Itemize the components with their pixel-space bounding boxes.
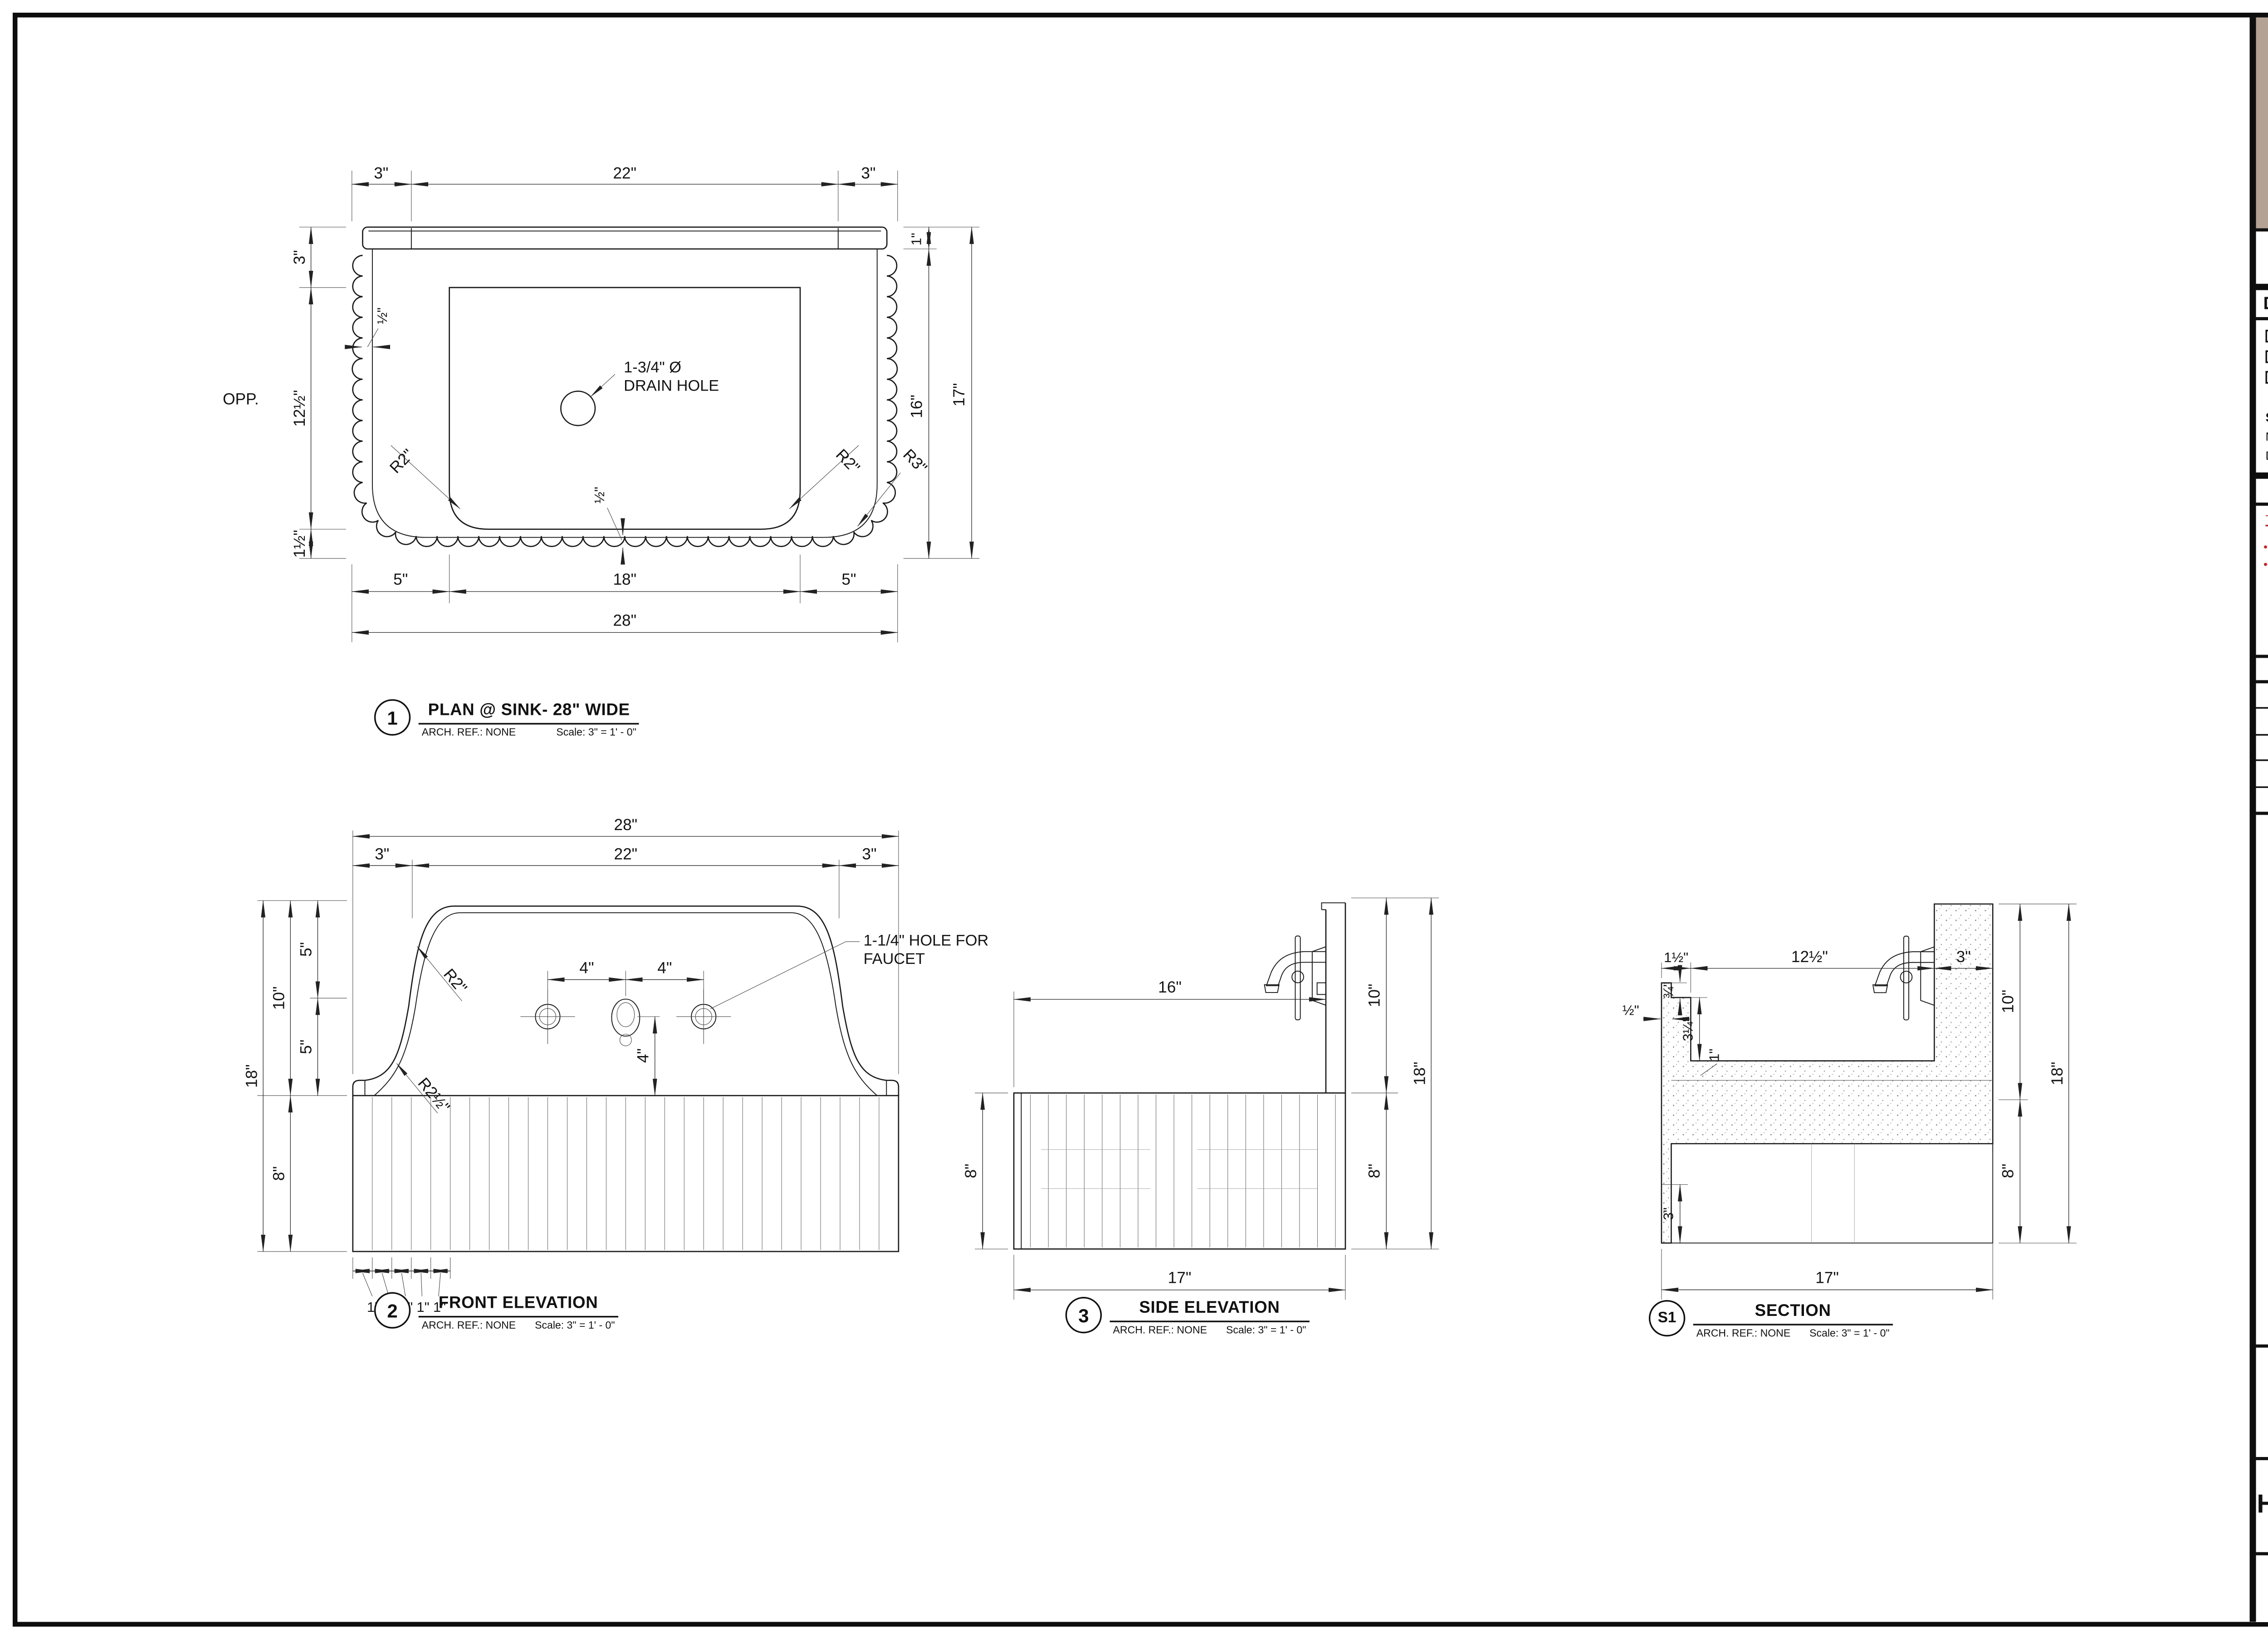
status-option: FOR PRODUCTION <box>2265 369 2268 383</box>
svg-text:DRAIN HOLE: DRAIN HOLE <box>624 377 719 395</box>
svg-text:3": 3" <box>291 250 308 264</box>
svg-text:FAUCET: FAUCET <box>864 950 925 968</box>
svg-text:10": 10" <box>1999 990 2017 1013</box>
svg-text:5": 5" <box>841 571 856 588</box>
front-elevation-view: 28" 3" 22" 3" 4" 4" 4" 1-1/4" HOLE FOR F… <box>231 815 1026 1359</box>
svg-text:22": 22" <box>614 845 638 863</box>
status-option: IN PROGRESS <box>2265 328 2268 342</box>
svg-text:1": 1" <box>908 233 924 245</box>
faucet <box>1265 936 1326 1020</box>
svg-text:4": 4" <box>657 959 672 977</box>
revisions-header: REVISIONS <box>2256 655 2268 683</box>
revisions-table: 1 2 3 4 5 <box>2256 683 2268 815</box>
drawing-status-options: IN PROGRESS APPROVED FOR PRODUCTION <box>2256 320 2268 407</box>
room-name-value: -- <box>2256 1378 2268 1403</box>
arch-ref: ARCH. REF.: NONE <box>422 1320 516 1331</box>
tolerance-notes-title: TOLERANCE NOTES: <box>2265 512 2268 526</box>
section-view: 1½" 12½" 3" ½" ¾" 3¼" 1" 3" <box>1593 886 2129 1353</box>
svg-text:17": 17" <box>950 383 968 406</box>
arch-ref: ARCH. REF.: NONE <box>422 727 516 738</box>
room-name-label: ROOM NAME <box>2256 1357 2268 1371</box>
signed-by-section: SIGNED BY: NAME : Date: <box>2256 407 2268 479</box>
studio-header: STUDIO LAKIR DRAFTING SERVICES <box>2256 231 2268 290</box>
revision-row: 5 <box>2256 787 2268 815</box>
drain-note: 1-3/4" Ø <box>624 359 681 376</box>
name-label: NAME : <box>2265 430 2268 444</box>
callout-front: 2 FRONT ELEVATION ARCH. REF.: NONE Scale… <box>374 1292 618 1331</box>
signed-by-label: SIGNED BY: <box>2265 411 2268 425</box>
callout-number: 2 <box>374 1292 411 1329</box>
svg-text:8": 8" <box>1999 1164 2017 1178</box>
plan-geometry: 1-3/4" Ø DRAIN HOLE <box>352 227 897 547</box>
logo: Cultheir <box>2256 17 2268 231</box>
view-title: SECTION <box>1693 1301 1893 1325</box>
svg-text:½": ½" <box>591 487 607 504</box>
callout-number: S1 <box>1649 1300 1685 1336</box>
plan-view: 1-3/4" Ø DRAIN HOLE 3" 22" 3" 1" 16" 17" <box>225 157 1015 675</box>
callout-number: 3 <box>1066 1297 1102 1333</box>
side-dimensions: 16" 10" 8" 18" 8" 17" <box>962 898 1439 1300</box>
svg-text:3": 3" <box>375 845 389 863</box>
view-scale: Scale: 3" = 1' - 0" <box>1809 1328 1889 1339</box>
svg-text:R3": R3" <box>899 446 930 477</box>
svg-text:10": 10" <box>1366 984 1383 1007</box>
svg-text:28": 28" <box>613 611 636 629</box>
checkbox-approved[interactable] <box>2265 350 2268 362</box>
svg-text:3": 3" <box>861 164 875 182</box>
front-dimensions: 28" 3" 22" 3" 4" 4" 4" 1-1/4" HOLE FOR F… <box>243 816 988 1315</box>
svg-text:18": 18" <box>243 1064 260 1088</box>
svg-text:3¼": 3¼" <box>1680 1017 1696 1041</box>
plan-dimensions: 3" 22" 3" 1" 16" 17" 3" 12½" 1½" OPP. <box>223 164 979 642</box>
svg-text:R2": R2" <box>386 446 417 477</box>
faucet <box>1873 936 1934 1020</box>
revision-row: 2 <box>2256 709 2268 735</box>
svg-text:18": 18" <box>1411 1062 1428 1085</box>
drawing-status-header: DRAWING STATUS <box>2256 290 2268 320</box>
svg-text:1": 1" <box>1706 1049 1722 1061</box>
drain-hole <box>561 391 595 425</box>
side-elevation-view: 16" 10" 8" 18" 8" 17" <box>951 886 1492 1353</box>
sheet-no-value: 1.1 <box>2256 1582 2268 1617</box>
svg-text:½": ½" <box>374 308 390 324</box>
callout-plan: 1 PLAN @ SINK- 28" WIDE ARCH. REF.: NONE… <box>374 699 640 738</box>
view-scale: Scale: 3" = 1' - 0" <box>556 727 636 738</box>
project-info: PROJECT NAME: DATE: 10.13.25 PROJECT NO.… <box>2256 815 2268 1347</box>
drawing-title-section: DRAWING TITLE HULUSI SINK <box>2256 1460 2268 1555</box>
svg-text:17": 17" <box>1168 1269 1192 1287</box>
room-name-section: ROOM NAME -- <box>2256 1348 2268 1460</box>
studio-subtitle: DRAFTING SERVICES <box>2256 259 2268 269</box>
view-title: SIDE ELEVATION <box>1110 1298 1310 1322</box>
svg-text:1½": 1½" <box>1664 949 1688 965</box>
view-title: PLAN @ SINK- 28" WIDE <box>419 701 640 724</box>
sheet-no-label: SHEET NO. <box>2256 1563 2268 1579</box>
svg-text:8": 8" <box>1366 1164 1383 1178</box>
svg-text:4": 4" <box>579 959 594 977</box>
revision-row: 1 <box>2256 683 2268 709</box>
view-title: FRONT ELEVATION <box>419 1294 618 1317</box>
callout-side: 3 SIDE ELEVATION ARCH. REF.: NONE Scale:… <box>1066 1297 1310 1336</box>
sheet-no-section: SHEET NO. 1.1 <box>2256 1555 2268 1622</box>
svg-text:17": 17" <box>1815 1269 1839 1286</box>
arch-ref: ARCH. REF.: NONE <box>1696 1328 1790 1339</box>
svg-text:R2": R2" <box>440 965 470 997</box>
svg-text:8": 8" <box>270 1166 288 1181</box>
faucet-hole-center <box>611 999 640 1046</box>
svg-text:12½": 12½" <box>291 390 308 427</box>
status-option: APPROVED <box>2265 349 2268 363</box>
checkbox-for-production[interactable] <box>2265 370 2268 383</box>
callout-number: 1 <box>374 699 411 735</box>
notes-section: NOTES TOLERANCE NOTES: MILLWORK: -- STON… <box>2256 479 2268 655</box>
checkbox-in-progress[interactable] <box>2265 329 2268 342</box>
svg-text:8": 8" <box>962 1164 980 1178</box>
view-scale: Scale: 3" = 1' - 0" <box>1226 1325 1306 1335</box>
drawing-title-label: DRAWING TITLE <box>2256 1470 2268 1486</box>
svg-text:28": 28" <box>614 816 638 834</box>
svg-text:¾": ¾" <box>1661 982 1677 998</box>
view-scale: Scale: 3" = 1' - 0" <box>535 1320 615 1331</box>
opp-label: OPP. <box>223 391 259 408</box>
arch-ref: ARCH. REF.: NONE <box>1113 1325 1207 1335</box>
front-geometry <box>353 906 899 1252</box>
svg-text:5": 5" <box>298 1040 315 1054</box>
svg-text:22": 22" <box>613 164 636 182</box>
date-label: Date: <box>2265 449 2268 463</box>
svg-text:12½": 12½" <box>1791 948 1828 966</box>
svg-text:10": 10" <box>270 987 288 1010</box>
svg-text:1½": 1½" <box>291 530 308 557</box>
callout-section: S1 SECTION ARCH. REF.: NONE Scale: 3" = … <box>1649 1300 1893 1339</box>
svg-text:16": 16" <box>1158 978 1182 996</box>
svg-text:R2": R2" <box>832 446 863 477</box>
drawing-title-value: HULUSI SINK <box>2256 1490 2268 1520</box>
svg-text:16": 16" <box>908 395 926 418</box>
svg-text:3": 3" <box>374 164 388 182</box>
svg-text:3": 3" <box>1956 948 1971 966</box>
svg-text:5": 5" <box>298 942 315 957</box>
svg-text:3": 3" <box>1661 1208 1677 1220</box>
svg-text:4": 4" <box>634 1048 652 1063</box>
drafting-sheet: 1-3/4" Ø DRAIN HOLE 3" 22" 3" 1" 16" 17" <box>0 0 2268 1633</box>
side-geometry <box>1014 903 1345 1249</box>
revision-row: 4 <box>2256 761 2268 787</box>
title-block: Cultheir STUDIO LAKIR DRAFTING SERVICES … <box>2250 17 2268 1622</box>
revision-row: 3 <box>2256 735 2268 761</box>
notes-header: NOTES <box>2256 479 2268 506</box>
svg-text:3": 3" <box>862 845 876 863</box>
studio-name: STUDIO LAKIR <box>2256 238 2268 257</box>
svg-text:18": 18" <box>2048 1062 2066 1085</box>
svg-text:18": 18" <box>613 571 636 588</box>
svg-text:5": 5" <box>393 571 408 588</box>
svg-text:½": ½" <box>1623 1002 1639 1018</box>
